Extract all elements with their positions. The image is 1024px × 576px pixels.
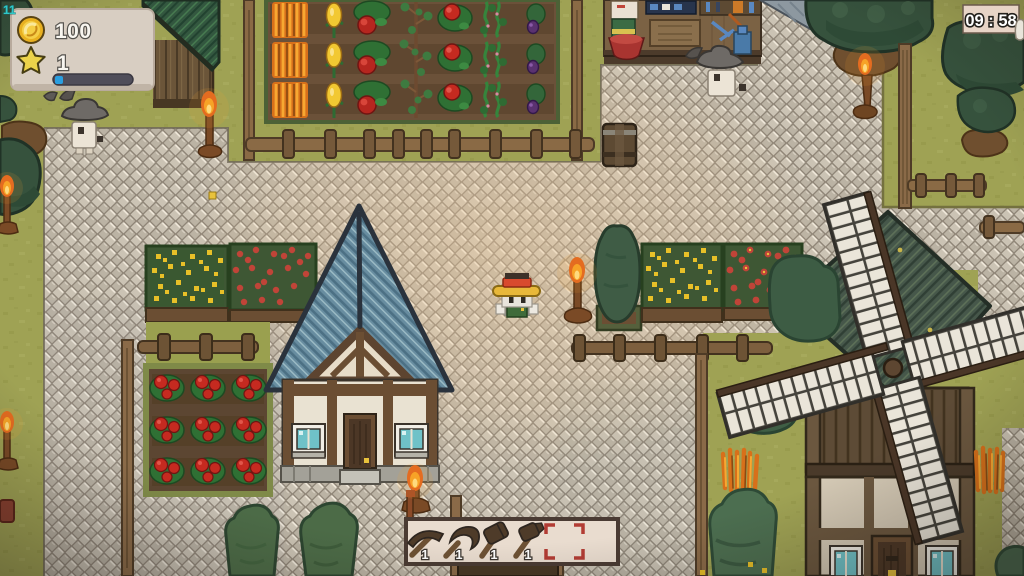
svg-text:09 : 58: 09 : 58: [965, 12, 1016, 30]
svg-text:100: 100: [55, 20, 92, 43]
svg-text:1: 1: [57, 52, 69, 75]
svg-text:11: 11: [3, 3, 16, 17]
